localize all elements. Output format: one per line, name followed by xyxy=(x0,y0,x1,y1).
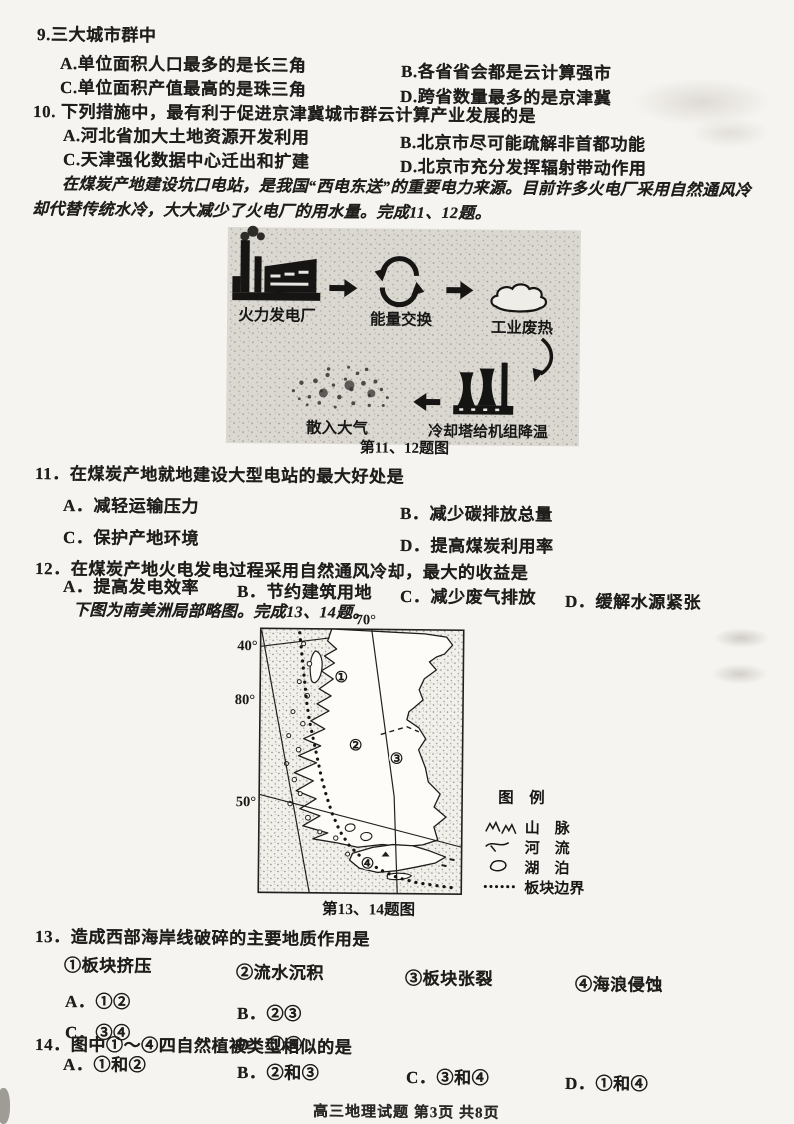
scan-smudge xyxy=(0,1088,10,1124)
question-11-option-b: B．减少碳排放总量 xyxy=(400,505,553,525)
page-footer: 高三地理试题 第3页 共8页 xyxy=(313,1104,500,1122)
diagram-caption: 第11、12题图 xyxy=(360,438,449,457)
map-label-lon70: 70° xyxy=(356,612,377,628)
question-11-option-d: D．提高煤炭利用率 xyxy=(400,537,554,557)
question-13-option-a: A．①② xyxy=(65,993,131,1012)
mountain-symbol xyxy=(486,822,516,833)
question-13-item-3: ③板块张裂 xyxy=(405,970,493,990)
map-lake xyxy=(345,824,355,832)
diagram-label-into-atmosphere: 散入大气 xyxy=(306,418,369,438)
diagram-label-power-plant: 火力发电厂 xyxy=(238,305,316,325)
question-13-item-1: ①板块挤压 xyxy=(64,957,152,977)
map-label-lat50: 50° xyxy=(236,794,257,810)
question-13-item-2: ②流水沉积 xyxy=(236,964,324,984)
map-label-lon80: 80° xyxy=(235,692,256,708)
lake-symbol xyxy=(490,861,505,871)
question-9-stem: 9.三大城市群中 xyxy=(37,26,157,46)
question-11-option-c: C．保护产地环境 xyxy=(63,529,199,549)
question-9-option-b: B.各省省会都是云计算强市 xyxy=(401,63,612,84)
legend-label-mountain: 山 脉 xyxy=(525,819,571,837)
question-12-option-b: B．节约建筑用地 xyxy=(237,583,372,603)
map-marker-3: ③ xyxy=(390,752,404,768)
question-14-option-a: A．①和② xyxy=(63,1056,146,1075)
question-12-option-a: A．提高发电效率 xyxy=(63,578,199,598)
diagram-label-waste-heat: 工业废热 xyxy=(491,318,554,338)
map-marker-4: ④ xyxy=(361,856,375,872)
map-marker-1: ① xyxy=(334,670,348,686)
passage-coal-line-1: 在煤炭产地建设坑口电站，是我国“西电东送”的重要电力来源。目前许多火电厂采用自然… xyxy=(62,176,751,200)
map-legend: 图 例 山 脉 河 流 湖 泊 板块边界 xyxy=(485,787,585,897)
question-11-option-a: A．减轻运输压力 xyxy=(63,497,199,517)
power-plant-flow-diagram: 火力发电厂 能量交换 工业废热 冷却塔给机组降温 xyxy=(223,222,585,460)
map-label-lat40: 40° xyxy=(237,638,258,654)
south-america-map: ① ② ③ ④ 70° 40° 80° 50° 图 例 山 脉 河 流 湖 泊 … xyxy=(227,603,650,929)
scan-smudge xyxy=(714,628,769,648)
scan-smudge xyxy=(632,78,772,126)
question-14-option-d: D．①和④ xyxy=(565,1075,648,1094)
question-13-option-b: B．②③ xyxy=(237,1005,302,1024)
question-9-option-a: A.单位面积人口最多的是长三角 xyxy=(60,55,307,76)
question-11-stem: 11．在煤炭产地就地建设大型电站的最大好处是 xyxy=(35,465,404,487)
question-10-option-b: B.北京市尽可能疏解非首都功能 xyxy=(400,134,646,155)
scan-smudge xyxy=(690,118,770,148)
question-13-item-4: ④海浪侵蚀 xyxy=(575,976,663,996)
map-caption: 第13、14题图 xyxy=(322,899,415,919)
legend-label-river: 河 流 xyxy=(525,839,570,857)
question-9-option-c: C.单位面积产值最高的是珠三角 xyxy=(60,79,307,100)
legend-label-lake: 湖 泊 xyxy=(524,859,569,877)
diagram-label-cooling-tower: 冷却塔给机组降温 xyxy=(428,422,548,441)
scan-smudge xyxy=(712,664,767,684)
exam-page: { "q9":{ "stem":"9.三大城市群中", "a":"A.单位面积人… xyxy=(0,0,794,1124)
map-marker-2: ② xyxy=(349,738,363,754)
question-14-option-c: C．③和④ xyxy=(406,1069,489,1088)
question-10-option-c: C.天津强化数据中心迁出和扩建 xyxy=(63,151,310,172)
legend-title: 图 例 xyxy=(498,788,545,807)
passage-coal-line-2: 却代替传统水冷，大大减少了火电厂的用水量。完成11、12题。 xyxy=(32,201,491,223)
question-10-option-a: A.河北省加大土地资源开发利用 xyxy=(63,127,310,148)
question-10-stem: 10. 下列措施中，最有利于促进京津冀城市群云计算产业发展的是 xyxy=(33,103,536,127)
legend-label-plate: 板块边界 xyxy=(524,879,584,898)
map-lake xyxy=(361,832,372,840)
river-symbol xyxy=(486,842,509,851)
question-10-option-d: D.北京市充分发挥辐射带动作用 xyxy=(400,158,647,179)
question-13-stem: 13．造成西部海岸线破碎的主要地质作用是 xyxy=(35,928,370,950)
question-14-option-b: B．②和③ xyxy=(237,1064,320,1083)
diagram-label-energy-exchange: 能量交换 xyxy=(370,309,433,329)
